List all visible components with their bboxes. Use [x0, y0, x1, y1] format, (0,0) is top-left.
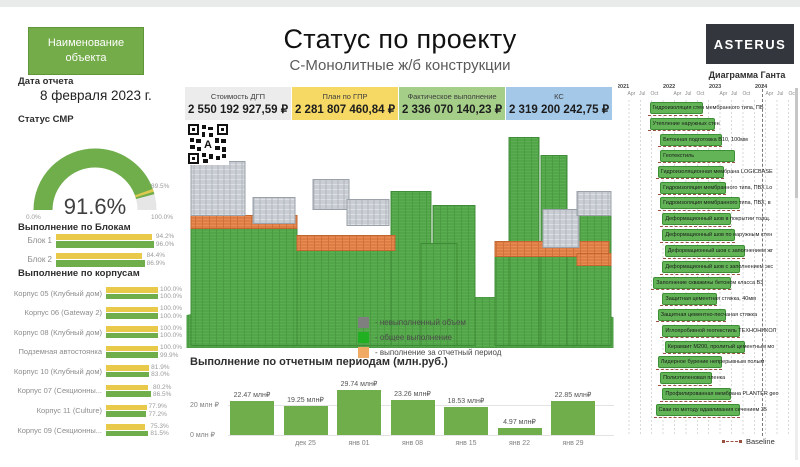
bar-row-label: Блок 2: [14, 255, 52, 264]
gantt-minor-tick: Apr: [720, 91, 728, 97]
gantt-minor-tick: Oct: [743, 91, 751, 97]
bar-values: 100.0%99.9%: [160, 344, 182, 359]
gantt-task-bar[interactable]: Профилированная мембрана PLANTER geo: [662, 388, 730, 400]
bar-segment[interactable]: [106, 385, 148, 391]
bar-values: 75.3%81.5%: [150, 423, 168, 438]
gantt-task-bar[interactable]: Сваи по методу вдавливания сечением 35: [656, 404, 741, 416]
gantt-task-bar[interactable]: Защитная цементно-песчаная стяжка: [658, 309, 726, 321]
smr-gauge: 91.6% 0.0% 100.0% 89.5%: [12, 126, 178, 222]
korpus-bar-chart: Корпус 05 (Клубный дом)100.0%100.0%Корпу…: [6, 286, 188, 443]
periods-chart: Выполнение по отчетным периодам (млн.руб…: [190, 356, 614, 460]
blocks-bar-chart: Блок 194.2%96.0%Блок 284.4%86.9%: [14, 232, 186, 270]
gantt-task-label: Защитная цементная стяжка, 40мм: [665, 296, 756, 302]
asterus-logo: ASTERUS: [706, 24, 794, 64]
gridline-0: [228, 435, 614, 436]
periods-plot: 20 млн ₽ 0 млн ₽ 22.47 млн₽19.25 млн₽дек…: [190, 374, 614, 460]
gantt-task-label: Лидерное бурение непрерывным полым: [661, 359, 765, 365]
bar-group: [56, 252, 145, 267]
gantt-task-label: Иглопробивной геотекстиль ТЕХНОНИКОЛ: [665, 328, 776, 334]
baseline-line-icon: [726, 441, 738, 442]
period-x-label: янв 01: [337, 440, 381, 447]
smr-status-label: Статус СМР: [18, 114, 74, 125]
period-x-label: янв 22: [498, 440, 542, 447]
gantt-task-label: Защитная цементно-песчаная стяжка: [661, 312, 757, 318]
bar-segment[interactable]: [106, 391, 151, 397]
legend-label: - невыполненный объем: [375, 318, 466, 327]
bar-value-label: 86.9%: [147, 260, 165, 267]
bar-value-label: 81.5%: [150, 430, 168, 437]
gantt-task-label: Полиэтиленовая пленка: [663, 375, 725, 381]
bar-segment[interactable]: [106, 372, 149, 378]
report-canvas: Наименование объекта Статус по проекту С…: [0, 0, 800, 467]
bar-value-label: 100.0%: [160, 344, 182, 351]
bar-segment[interactable]: [106, 405, 147, 411]
legend-swatch-icon: [358, 317, 369, 328]
bar-value-label: 86.5%: [153, 391, 171, 398]
period-bar[interactable]: [284, 406, 328, 435]
gantt-baseline-line: [658, 210, 740, 211]
gantt-task-bar[interactable]: Керамзит М200, пролитый цементным мо: [665, 341, 745, 353]
bar-row-label: Подземная автостоянка: [6, 347, 102, 356]
gantt-today-line: [762, 84, 763, 436]
gantt-title: Диаграмма Ганта: [700, 70, 794, 80]
bar-values: 84.4%86.9%: [147, 252, 165, 267]
gantt-scrollbar[interactable]: [795, 88, 798, 460]
gantt-baseline-line: [660, 401, 730, 402]
bar-row-label: Корпус 10 (Клубный дом): [6, 367, 102, 376]
gantt-baseline-line: [651, 289, 731, 290]
gantt-baseline-line: [663, 353, 745, 354]
bar-row: Корпус 09 (Секционны...75.3%81.5%: [6, 423, 188, 437]
gantt-task-label: Утепление наружных стен: [653, 121, 720, 127]
y-axis-min: 0 млн ₽: [190, 431, 224, 439]
bar-segment[interactable]: [56, 260, 145, 267]
bar-row: Корпус 05 (Клубный дом)100.0%100.0%: [6, 286, 188, 300]
gantt-task-label: Гидроизоляция мембранного типа, ПВХ, в: [663, 200, 771, 206]
y-axis-max: 20 млн ₽: [190, 401, 224, 409]
gantt-year-label: 2022: [663, 84, 675, 90]
period-bar[interactable]: [498, 428, 542, 435]
gantt-minor-tick: Apr: [674, 91, 682, 97]
bar-values: 80.2%86.5%: [153, 384, 171, 399]
bar-row-label: Корпус 06 (Gateway 2): [6, 308, 102, 317]
baseline-marker-icon: [739, 440, 742, 443]
legend-item: - общее выполнение: [358, 332, 501, 343]
gantt-task-bar[interactable]: Иглопробивной геотекстиль ТЕХНОНИКОЛ: [662, 325, 740, 337]
gantt-task-label: Гидроизоляция стен мембранного типа, ПВ: [653, 105, 764, 111]
gantt-baseline-line: [660, 337, 740, 338]
legend-label: - общее выполнение: [375, 333, 452, 342]
bar-value-label: 100.0%: [160, 293, 182, 300]
gantt-task-label: Керамзит М200, пролитый цементным мо: [668, 344, 775, 350]
gantt-minor-tick: Jul: [639, 91, 645, 97]
bar-value-label: 80.2%: [153, 384, 171, 391]
gantt-task-bar[interactable]: Деформационный шов по наружным стен: [662, 229, 735, 241]
gantt-task-label: Деформационный шов с заполнением жг: [668, 248, 773, 254]
gantt-baseline-line: [648, 115, 704, 116]
gantt-task-bar[interactable]: Заполнение скважины бетоном класса В3: [653, 277, 731, 289]
gauge-target: 89.5%: [151, 183, 170, 190]
period-bar-value: 19.25 млн₽: [276, 396, 336, 404]
period-bar[interactable]: [444, 407, 488, 435]
gantt-task-label: Сваи по методу вдавливания сечением 35: [659, 407, 767, 413]
bar-segment[interactable]: [56, 241, 154, 248]
period-bar-value: 23.26 млн₽: [383, 390, 443, 398]
gantt-baseline-line: [660, 305, 717, 306]
bar-segment[interactable]: [106, 352, 158, 358]
bar-row-label: Корпус 08 (Клубный дом): [6, 328, 102, 337]
report-date-label: Дата отчета: [18, 76, 73, 87]
bar-values: 94.2%96.0%: [156, 233, 174, 248]
gantt-task-label: Деформационный шов по наружным стен: [665, 232, 772, 238]
gauge-max: 100.0%: [151, 214, 173, 221]
bar-value-label: 77.9%: [149, 403, 167, 410]
bar-row-label: Корпус 07 (Секционны...: [6, 386, 102, 395]
bar-value-label: 100.0%: [160, 313, 182, 320]
gantt-baseline-line: [654, 417, 741, 418]
gantt-year-label: 2023: [709, 84, 721, 90]
page-title: Статус по проекту: [185, 24, 615, 55]
gantt-task-bar[interactable]: Гидроизоляция мембранного типа, ПВХ Lo: [660, 182, 726, 194]
bar-group: [106, 306, 158, 319]
gantt-baseline-line: [656, 178, 724, 179]
bar-row-label: Корпус 05 (Клубный дом): [6, 289, 102, 298]
bar-value-label: 100.0%: [160, 325, 182, 332]
bar-group: [106, 365, 149, 378]
period-x-label: янв 29: [551, 440, 595, 447]
gantt-minor-tick: Apr: [628, 91, 636, 97]
report-date-value: 8 февраля 2023 г.: [40, 88, 152, 103]
bar-value-label: 75.3%: [150, 423, 168, 430]
period-bar-value: 4.97 млн₽: [490, 418, 550, 426]
period-x-label: янв 15: [444, 440, 488, 447]
gantt-baseline-line: [648, 130, 715, 131]
gantt-task-bar[interactable]: Гидроизоляция мембранного типа, ПВХ, в: [660, 197, 740, 209]
baseline-marker-icon: [722, 440, 725, 443]
bar-value-label: 100.0%: [160, 305, 182, 312]
gantt-baseline-line: [660, 242, 735, 243]
kpi-label: КС: [554, 92, 564, 101]
gauge-min: 0.0%: [26, 214, 41, 221]
gantt-task-bar[interactable]: Деформационный шов в покрытии толщ.: [662, 213, 730, 225]
gantt-task-bar[interactable]: Деформационный шов с заполнением жг: [665, 245, 745, 257]
baseline-legend: Baseline: [722, 437, 775, 446]
bar-row: Корпус 10 (Клубный дом)81.9%83.0%: [6, 364, 188, 378]
bar-row-label: Блок 1: [14, 236, 52, 245]
bar-row-label: Корпус 09 (Секционны...: [6, 426, 102, 435]
gantt-minor-tick: Jul: [685, 91, 691, 97]
bar-value-label: 94.2%: [156, 233, 174, 240]
bar-segment[interactable]: [106, 411, 146, 417]
bar-values: 100.0%100.0%: [160, 305, 182, 320]
bar-segment[interactable]: [106, 294, 158, 300]
bar-segment[interactable]: [106, 365, 149, 371]
gantt-task-bar[interactable]: Геотекстиль: [660, 150, 735, 162]
header-titles: Статус по проекту С-Монолитные ж/б конст…: [185, 24, 615, 74]
gantt-task-bar[interactable]: Бетонная подготовка В10, 100мм: [660, 134, 722, 146]
gantt-task-label: Гидроизоляция мембранного типа, ПВХ Lo: [663, 185, 772, 191]
periods-chart-title: Выполнение по отчетным периодам (млн.руб…: [190, 356, 614, 368]
gantt-task-bar[interactable]: Гидроизоляция стен мембранного типа, ПВ: [650, 102, 704, 114]
bar-row-label: Корпус 11 (Culture): [6, 406, 102, 415]
kpi-label: Стоимость ДГП: [211, 92, 265, 101]
gantt-task-bar[interactable]: Утепление наружных стен: [650, 118, 715, 130]
bar-values: 77.9%77.2%: [149, 403, 167, 418]
period-bar-value: 22.47 млн₽: [222, 391, 282, 399]
bar-segment[interactable]: [106, 313, 158, 319]
bar-value-label: 83.0%: [151, 371, 169, 378]
period-bar[interactable]: [230, 401, 274, 435]
bar-row: Корпус 08 (Клубный дом)100.0%100.0%: [6, 325, 188, 339]
period-bar[interactable]: [551, 401, 595, 435]
gantt-task-label: Деформационный шов в покрытии толщ.: [665, 216, 770, 222]
gantt-year-label: 2021: [618, 84, 629, 90]
gantt-minor-tick: Jul: [731, 91, 737, 97]
period-bar-value: 18.53 млн₽: [436, 397, 496, 405]
bar-row: Блок 284.4%86.9%: [14, 251, 186, 268]
bar-segment[interactable]: [106, 424, 145, 430]
korpus-chart-title: Выполнение по корпусам: [18, 268, 140, 279]
bar-value-label: 81.9%: [151, 364, 169, 371]
qr-center-letter: A: [204, 139, 212, 151]
gantt-scrollbar-thumb[interactable]: [795, 88, 798, 198]
bar-group: [106, 384, 151, 397]
gantt-baseline-line: [656, 321, 726, 322]
gantt-task-label: Заполнение скважины бетоном класса В3: [656, 280, 763, 286]
bar-segment[interactable]: [56, 234, 152, 241]
qr-code: A: [187, 123, 229, 165]
legend-swatch-icon: [358, 332, 369, 343]
object-name-button[interactable]: Наименование объекта: [28, 27, 144, 75]
bar-segment[interactable]: [56, 253, 142, 260]
gantt-task-label: Деформационный шов с заполнением экс: [665, 264, 773, 270]
period-bar-value: 22.85 млн₽: [543, 391, 603, 399]
kpi-label: Фактическое выполнение: [407, 92, 496, 101]
period-bar[interactable]: [337, 390, 381, 435]
gantt-task-bar[interactable]: Полиэтиленовая пленка: [660, 372, 712, 384]
gantt-task-label: Бетонная подготовка В10, 100мм: [663, 137, 748, 143]
gantt-rows: Гидроизоляция стен мембранного типа, ПВУ…: [618, 100, 798, 436]
gantt-task-label: Гидроизоляционная мембрана LOGICBASE: [661, 169, 773, 175]
gantt-task-bar[interactable]: Гидроизоляционная мембрана LOGICBASE: [658, 166, 724, 178]
period-x-label: янв 08: [391, 440, 435, 447]
gantt-minor-tick: Jul: [777, 91, 783, 97]
bar-values: 81.9%83.0%: [151, 364, 169, 379]
bar-value-label: 99.9%: [160, 352, 182, 359]
gantt-task-label: Геотекстиль: [663, 153, 694, 159]
bar-row: Корпус 06 (Gateway 2)100.0%100.0%: [6, 306, 188, 320]
bar-group: [106, 326, 158, 339]
gantt-minor-tick: Oct: [697, 91, 705, 97]
page-subtitle: С-Монолитные ж/б конструкции: [185, 57, 615, 74]
period-bar[interactable]: [391, 400, 435, 435]
gantt-baseline-line: [658, 162, 735, 163]
bar-segment[interactable]: [106, 346, 158, 352]
bar-row: Корпус 07 (Секционны...80.2%86.5%: [6, 384, 188, 398]
period-bar-value: 29.74 млн₽: [329, 380, 389, 388]
gantt-chart: 2021AprJulOct2022AprJulOct2023AprJulOct2…: [618, 84, 798, 436]
bar-segment[interactable]: [106, 431, 148, 437]
bar-row: Блок 194.2%96.0%: [14, 232, 186, 249]
bar-value-label: 100.0%: [160, 286, 182, 293]
gantt-baseline-line: [663, 258, 745, 259]
gantt-minor-tick: Apr: [766, 91, 774, 97]
baseline-label: Baseline: [746, 437, 775, 446]
bar-value-label: 77.2%: [149, 411, 167, 418]
bar-value-label: 96.0%: [156, 241, 174, 248]
gantt-baseline-line: [658, 194, 726, 195]
bar-segment[interactable]: [106, 326, 158, 332]
bar-group: [106, 287, 158, 300]
legend-item: - невыполненный объем: [358, 317, 501, 328]
period-x-label: дек 25: [284, 440, 328, 447]
bar-row: Корпус 11 (Culture)77.9%77.2%: [6, 404, 188, 418]
gantt-task-bar[interactable]: Лидерное бурение непрерывным полым: [658, 356, 722, 368]
bar-group: [106, 404, 147, 417]
bar-value-label: 100.0%: [160, 332, 182, 339]
bar-group: [106, 345, 158, 358]
bar-values: 100.0%100.0%: [160, 286, 182, 301]
bar-values: 100.0%100.0%: [160, 325, 182, 340]
top-strip: [0, 0, 800, 7]
gantt-baseline-line: [660, 226, 730, 227]
gantt-baseline-line: [658, 385, 712, 386]
bar-group: [56, 233, 154, 248]
bar-group: [106, 424, 148, 437]
bar-row: Подземная автостоянка100.0%99.9%: [6, 345, 188, 359]
bar-segment[interactable]: [106, 333, 158, 339]
kpi-label: План по ГПР: [323, 92, 368, 101]
bar-segment[interactable]: [106, 307, 158, 313]
gantt-task-bar[interactable]: Деформационный шов с заполнением экс: [662, 261, 740, 273]
gantt-minor-tick: Oct: [651, 91, 659, 97]
gantt-baseline-line: [660, 274, 740, 275]
bar-segment[interactable]: [106, 287, 158, 293]
gantt-task-bar[interactable]: Защитная цементная стяжка, 40мм: [662, 293, 717, 305]
gauge-value: 91.6%: [64, 194, 126, 219]
bar-value-label: 84.4%: [147, 252, 165, 259]
gantt-baseline-line: [656, 369, 722, 370]
gantt-baseline-line: [658, 146, 722, 147]
